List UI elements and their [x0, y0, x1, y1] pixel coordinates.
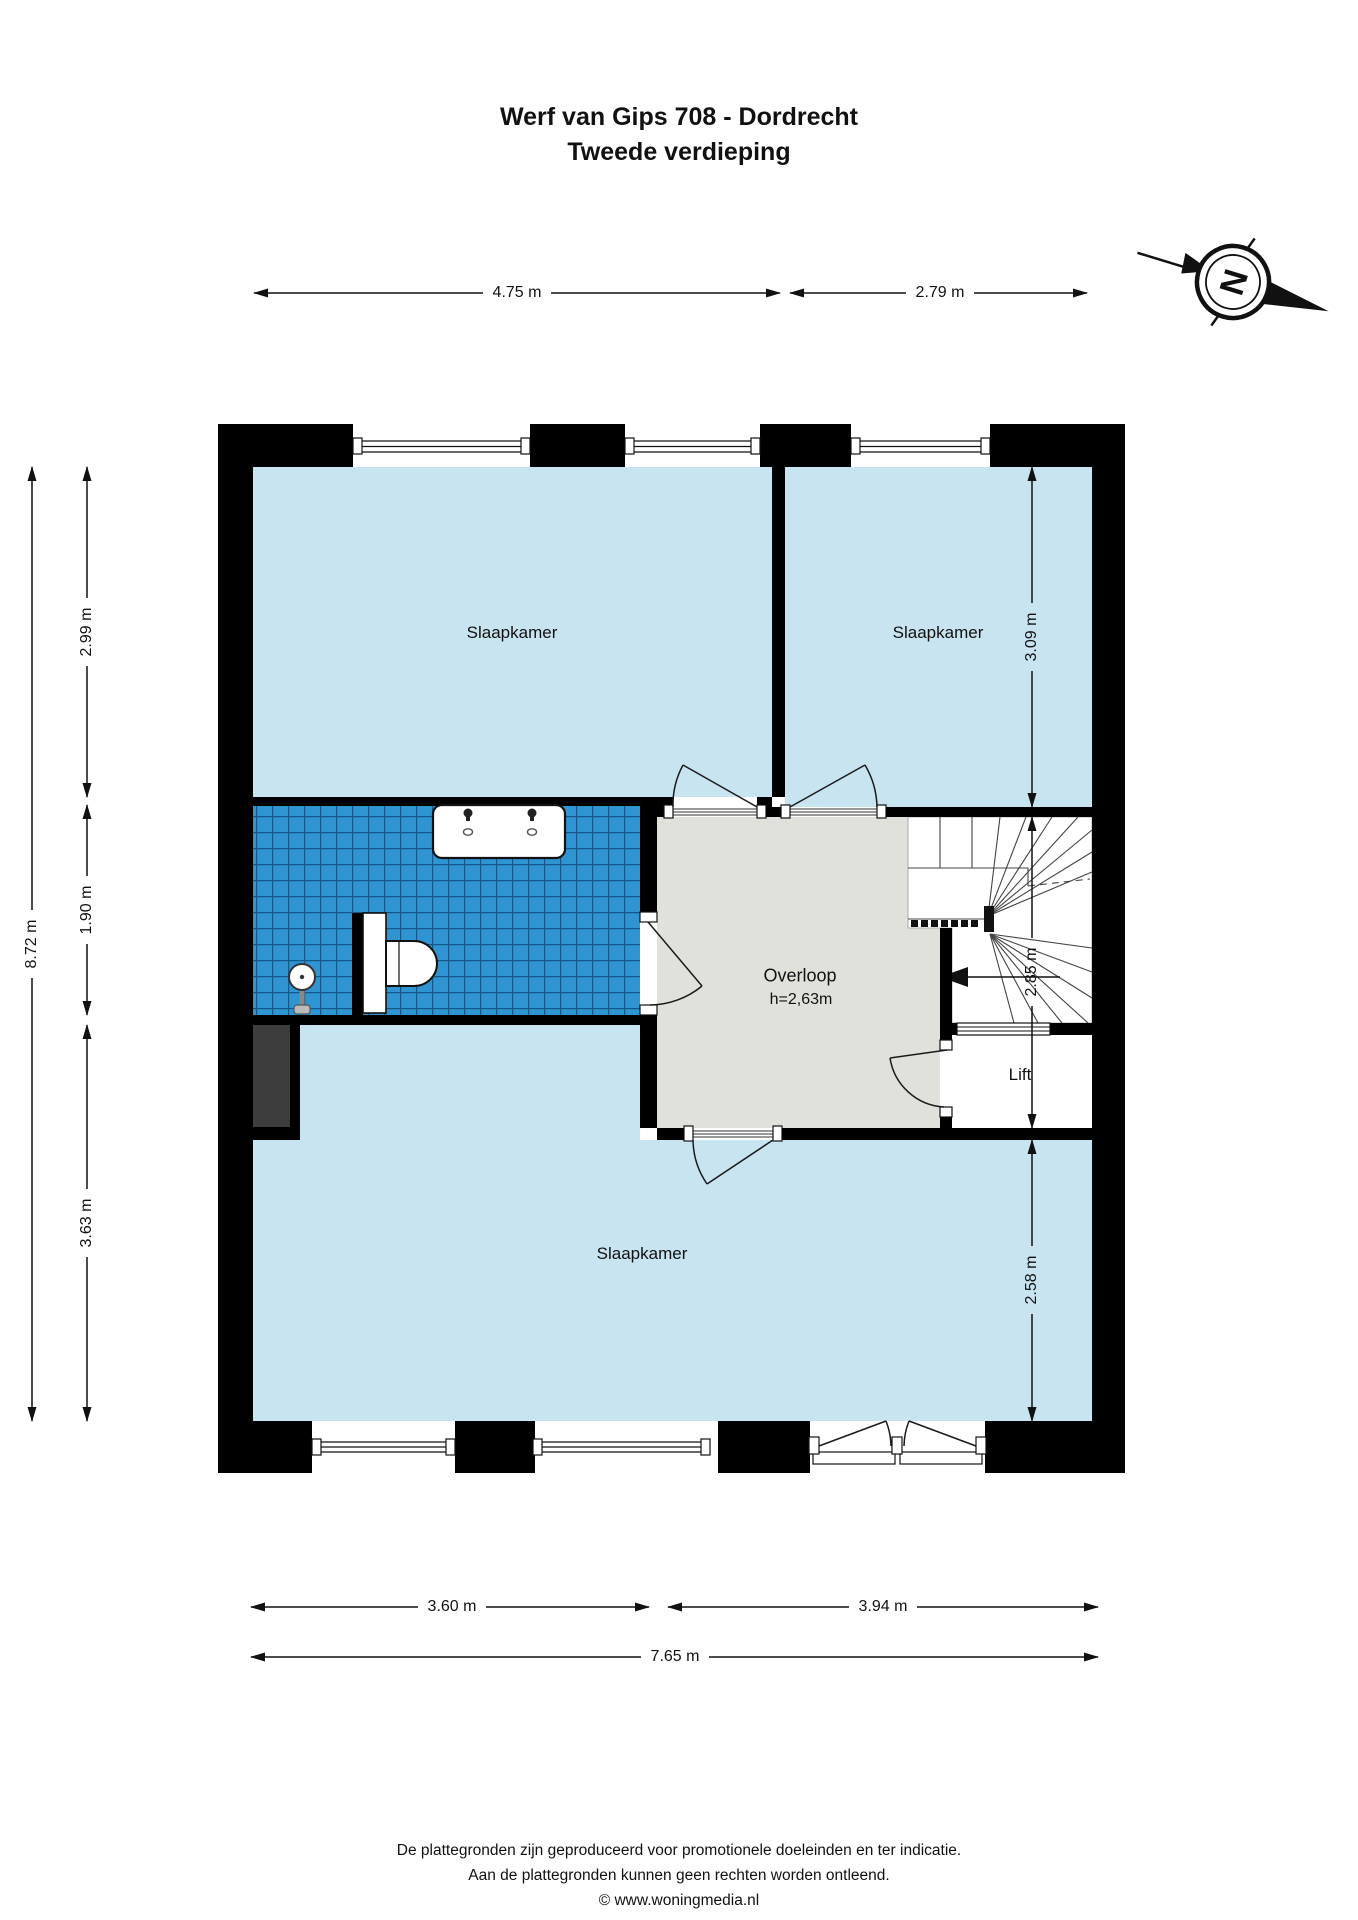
- dim-bottom-total-width: 7.65 m: [651, 1648, 700, 1666]
- dim-top-left-width: 4.75 m: [493, 284, 542, 302]
- dim-left-total-height: 8.72 m: [23, 920, 41, 969]
- disclaimer-line1: De plattegronden zijn geproduceerd voor …: [0, 1838, 1358, 1863]
- dim-bottom-left-width: 3.60 m: [428, 1598, 477, 1616]
- shaft-area: [252, 1025, 290, 1127]
- room-label-hallway: Overloop: [763, 966, 836, 987]
- wall-toilet-partition: [352, 913, 363, 1015]
- dim-left-bottom-height: 3.63 m: [78, 1199, 96, 1248]
- wall-left: [218, 424, 253, 1473]
- wall-bedroom-divider: [772, 467, 785, 797]
- room-label-lift: Lift: [1009, 1065, 1032, 1085]
- floorplan-drawing: N: [0, 0, 1358, 1920]
- compass-rose: N: [1123, 207, 1342, 357]
- disclaimer-line2: Aan de plattegronden kunnen geen rechten…: [0, 1863, 1358, 1888]
- dim-bottom-right-width: 3.94 m: [859, 1598, 908, 1616]
- dim-left-bedroom-height: 2.99 m: [78, 608, 96, 657]
- title-line2: Tweede verdieping: [0, 135, 1358, 170]
- dim-right-bedroom-height: 3.09 m: [1023, 613, 1041, 662]
- room-label-bedroom-top-right: Slaapkamer: [893, 623, 984, 643]
- disclaimer: De plattegronden zijn geproduceerd voor …: [0, 1838, 1358, 1913]
- title-line1: Werf van Gips 708 - Dordrecht: [0, 100, 1358, 135]
- dim-top-right-width: 2.79 m: [916, 284, 965, 302]
- floorplan-page: N Werf van Gips 708 - Dordrecht Tweede v…: [0, 0, 1358, 1920]
- dim-right-bottom-height: 2.58 m: [1023, 1256, 1041, 1305]
- copyright: © www.woningmedia.nl: [0, 1888, 1358, 1913]
- dim-left-bathroom-height: 1.90 m: [78, 886, 96, 935]
- room-label-bedroom-top-left: Slaapkamer: [467, 623, 558, 643]
- dim-right-hall-height: 2.85 m: [1023, 948, 1041, 997]
- page-title: Werf van Gips 708 - Dordrecht Tweede ver…: [0, 100, 1358, 170]
- hallway-ceiling-height: h=2,63m: [770, 991, 833, 1009]
- wall-right: [1092, 424, 1125, 1473]
- room-label-bedroom-bottom: Slaapkamer: [597, 1244, 688, 1264]
- french-door-sills: [809, 1437, 986, 1464]
- double-sink: [433, 805, 565, 858]
- stair-railing: [957, 1023, 1050, 1035]
